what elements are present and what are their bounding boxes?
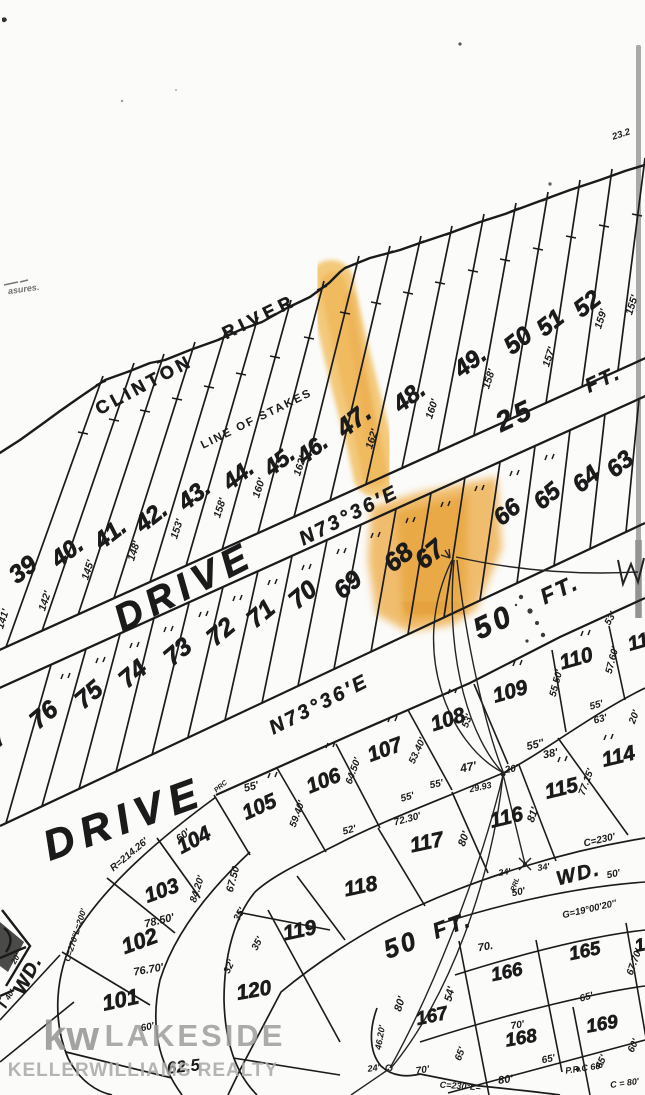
svg-text:KELLERWILLIAMS REALTY: KELLERWILLIAMS REALTY [8, 1060, 278, 1081]
svg-text:LAKESIDE: LAKESIDE [105, 1018, 286, 1053]
svg-text:kw: kw [43, 1012, 99, 1059]
svg-text:70': 70' [415, 1064, 431, 1077]
svg-text:80': 80' [497, 1073, 514, 1087]
svg-text:24': 24' [366, 1062, 381, 1074]
